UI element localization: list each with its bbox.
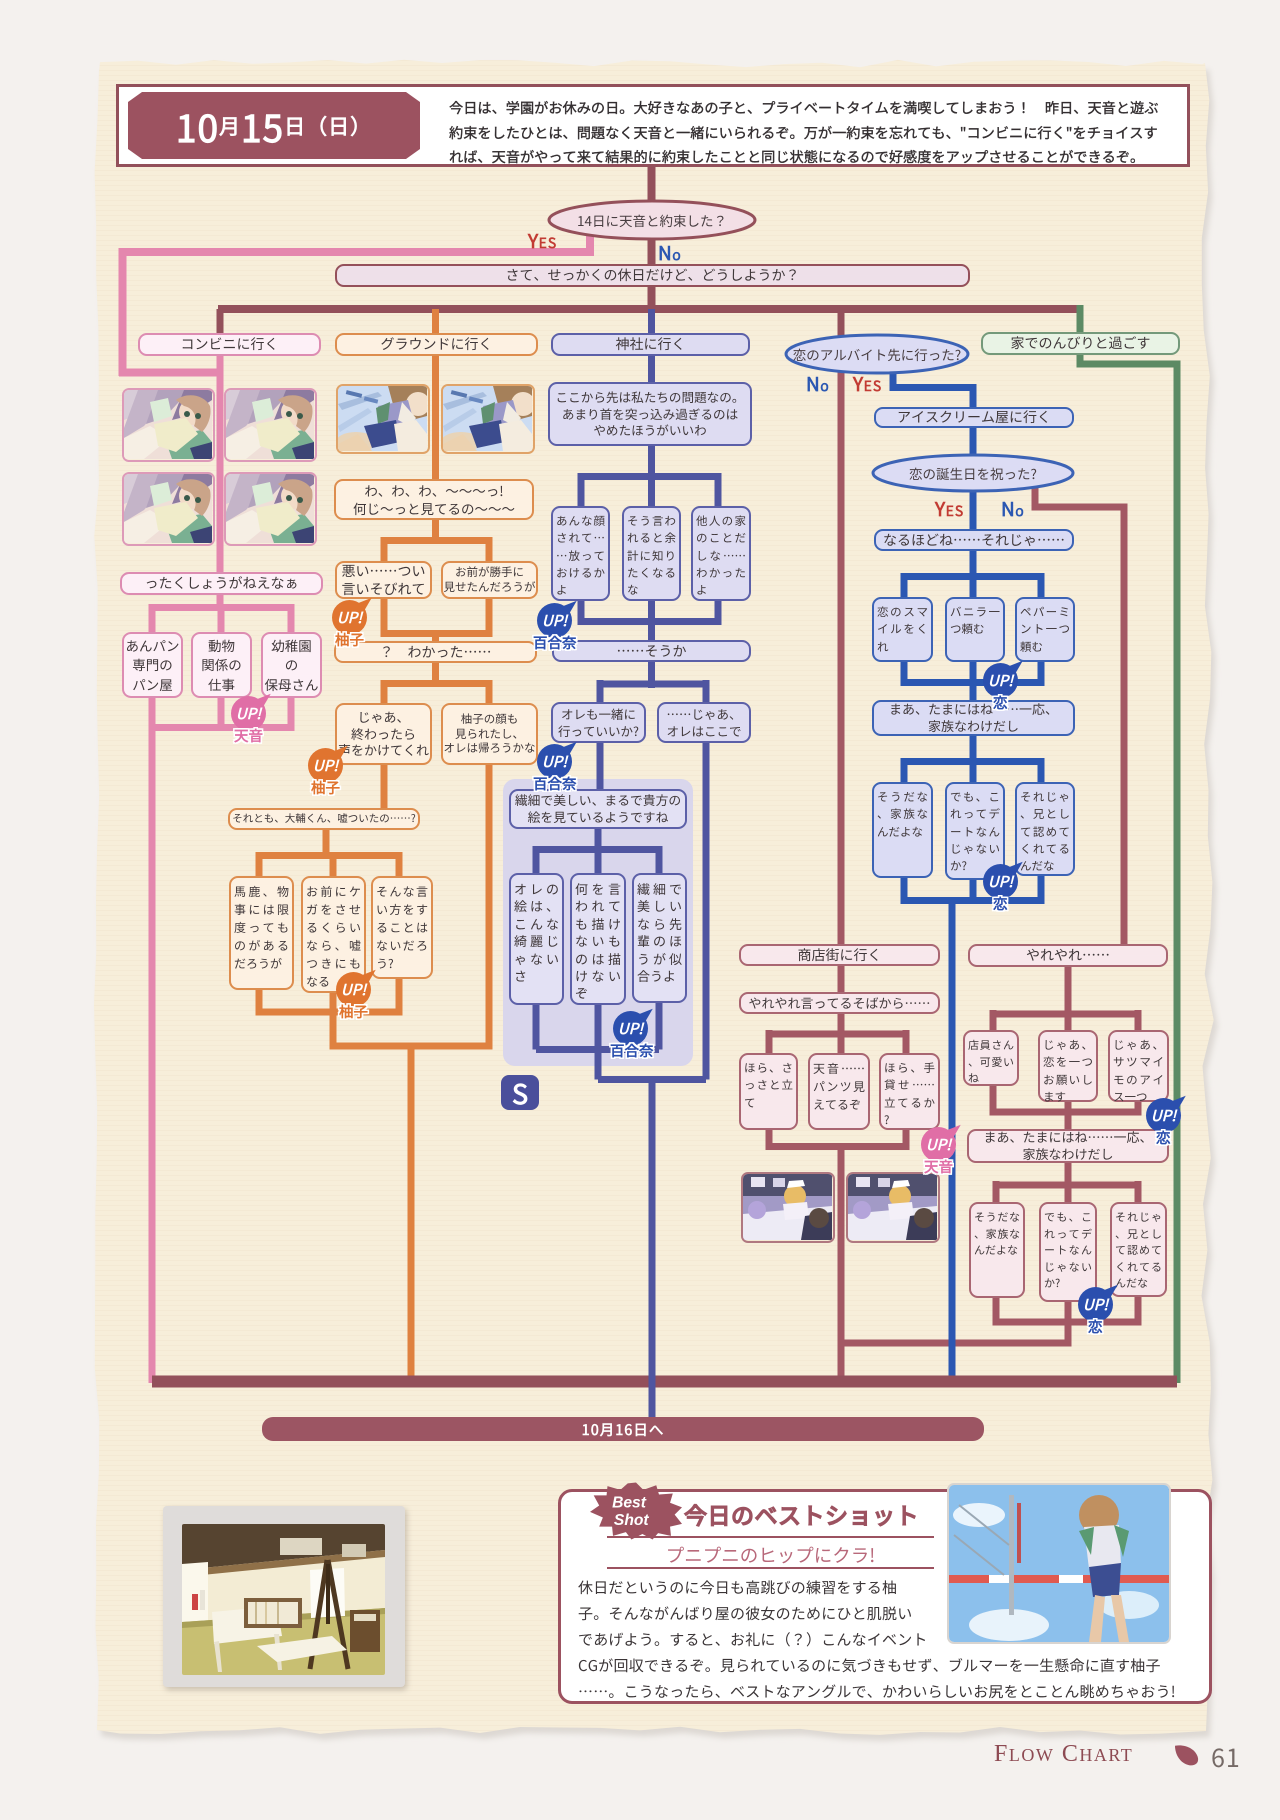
svg-text:Shot: Shot bbox=[614, 1512, 650, 1529]
svg-text:Best: Best bbox=[612, 1494, 647, 1511]
